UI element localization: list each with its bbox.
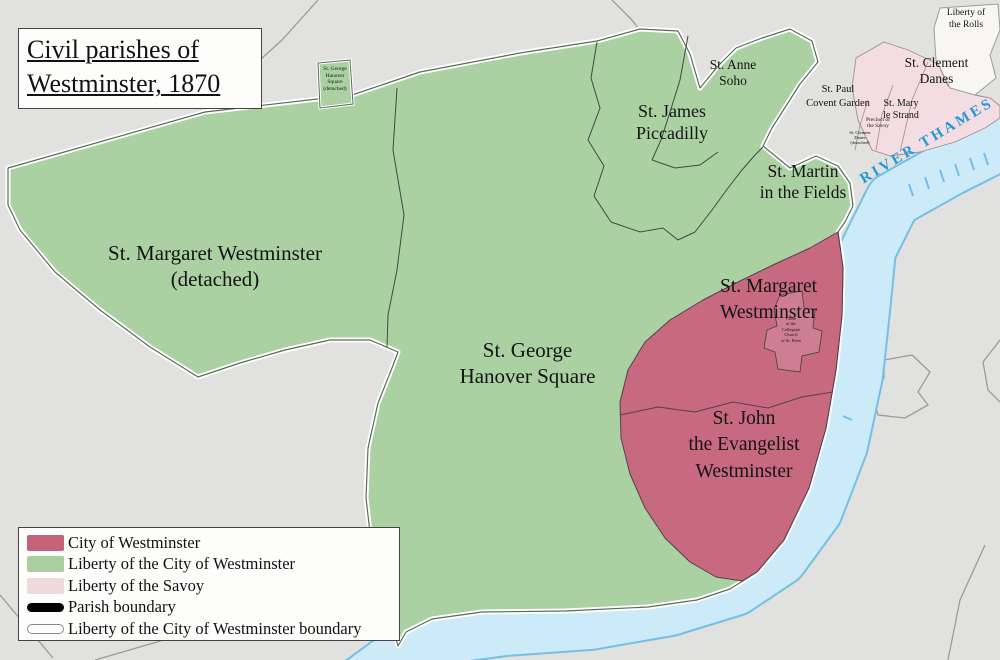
legend-row-liberty: Liberty of the City of Westminster [27, 554, 395, 576]
map-legend: City of Westminster Liberty of the City … [18, 527, 400, 641]
legend-row-savoy: Liberty of the Savoy [27, 575, 395, 597]
legend-swatch-liberty-boundary [27, 624, 64, 634]
region-st-george-detached [318, 60, 353, 108]
legend-swatch-city-of-westminster [27, 535, 64, 551]
legend-row-city: City of Westminster [27, 532, 395, 554]
map-title-line1: Civil parishes of [27, 33, 253, 67]
map-title-box: Civil parishes of Westminster, 1870 [18, 28, 262, 109]
legend-swatch-parish-boundary [27, 603, 64, 612]
legend-label: City of Westminster [68, 533, 200, 553]
map-title-line2: Westminster, 1870 [27, 67, 253, 101]
legend-label: Parish boundary [68, 597, 176, 617]
legend-label: Liberty of the City of Westminster [68, 554, 295, 574]
map-canvas: St. Margaret Westminster (detached) St. … [0, 0, 1000, 660]
legend-label: Liberty of the City of Westminster bound… [68, 619, 361, 639]
legend-label: Liberty of the Savoy [68, 576, 204, 596]
legend-swatch-liberty-of-westminster [27, 556, 64, 572]
legend-row-parish-boundary: Parish boundary [27, 597, 395, 619]
legend-swatch-liberty-of-savoy [27, 578, 64, 594]
legend-row-liberty-boundary: Liberty of the City of Westminster bound… [27, 618, 395, 640]
